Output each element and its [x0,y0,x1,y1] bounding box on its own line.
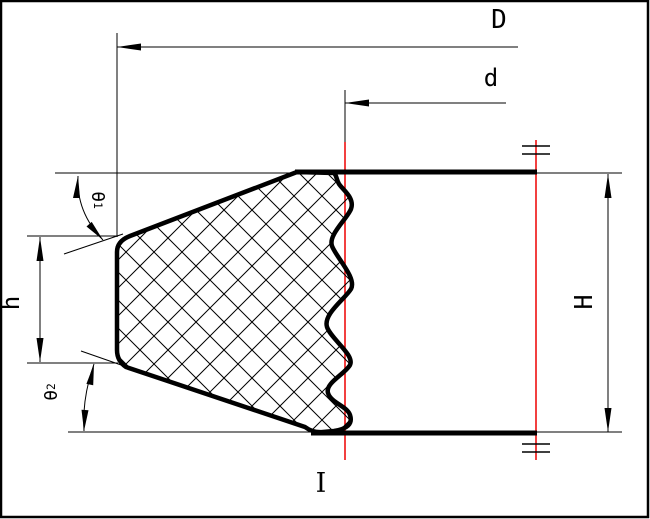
dim-d-arrow-left [345,100,369,107]
theta1-symbol: θ [88,191,106,202]
dim-h-arrow-up [37,237,44,261]
theta2-symbol: θ [43,390,61,401]
label-angle-theta2: θ2 [32,372,72,412]
dim-D-arrow-left [117,44,141,51]
theta1-arrow-down [87,222,104,240]
dim-h-arrow-down [37,338,44,362]
theta2-arrow-down [82,410,89,431]
dim-H-arrow-up [605,174,612,198]
label-outer-diameter: D [484,6,514,34]
label-lip-height: h [0,288,26,318]
dim-H-arrow-down [605,408,612,432]
seal-cross-section [117,172,352,432]
label-angle-theta1: θ1 [77,180,117,220]
label-inner-diameter: d [476,64,506,92]
theta2-arrow-up [86,364,94,385]
cad-drawing-canvas: D d H h θ1 θ2 I [0,0,650,519]
label-section-mark: I [306,469,336,497]
theta1-extension-line [64,234,123,254]
drawing-geometry [0,0,650,519]
label-total-height: H [568,287,598,317]
